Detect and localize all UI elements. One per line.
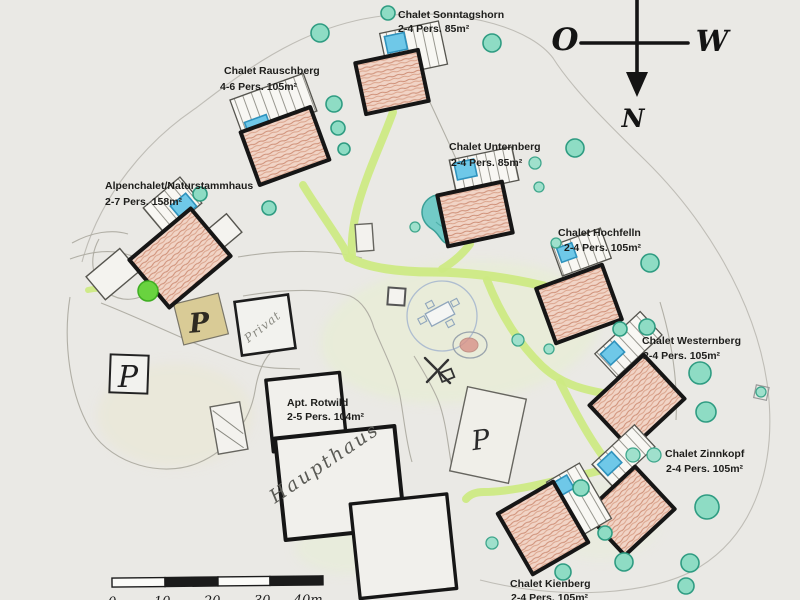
small-hut <box>355 223 374 251</box>
label-hochfelln-capacity: 2-4 Pers. 105m² <box>564 242 642 254</box>
label-alpenchalet-name: Alpenchalet/Naturstammhaus <box>105 180 253 192</box>
sandbox <box>387 287 405 305</box>
scale-tick-20: 20 <box>203 594 221 600</box>
green-bush <box>138 281 158 301</box>
label-rauschberg-capacity: 4-6 Pers. 105m² <box>220 81 298 93</box>
scale-bar: 0 10 20 30 40m <box>108 576 323 600</box>
label-zinnkopf-capacity: 2-4 Pers. 105m² <box>666 463 744 475</box>
site-map: Chalet Sonntagshorn 2-4 Pers. 85m² Chale… <box>0 0 800 600</box>
compass: O W N <box>551 0 730 133</box>
parking-p-tan: P <box>187 307 212 340</box>
label-rotwild-capacity: 2-5 Pers. 104m² <box>287 411 365 423</box>
label-westernberg-capacity: 2-4 Pers. 105m² <box>643 350 721 362</box>
scale-tick-0: 0 <box>108 595 116 600</box>
compass-north: N <box>621 104 646 133</box>
haupthaus-annex <box>350 494 456 599</box>
label-kienberg-name: Chalet Kienberg <box>510 578 591 590</box>
compass-west: W <box>696 24 731 58</box>
label-hochfelln-name: Chalet Hochfelln <box>558 227 641 239</box>
label-kienberg-capacity: 2-4 Pers. 105m² <box>511 592 589 600</box>
compass-east: O <box>551 22 578 58</box>
label-unternberg-name: Chalet Unternberg <box>449 141 541 153</box>
label-rauschberg-name: Chalet Rauschberg <box>224 65 320 77</box>
scale-tick-10: 10 <box>154 594 171 600</box>
label-alpenchalet-capacity: 2-7 Pers. 158m² <box>105 196 183 208</box>
label-sonntagshorn-name: Chalet Sonntagshorn <box>398 9 504 21</box>
label-sonntagshorn-capacity: 2-4 Pers. 85m² <box>398 23 470 35</box>
label-westernberg-name: Chalet Westernberg <box>642 335 741 347</box>
label-zinnkopf-name: Chalet Zinnkopf <box>665 448 745 460</box>
scale-tick-40m: 40m <box>293 593 323 600</box>
site-map-drawing: Chalet Sonntagshorn 2-4 Pers. 85m² Chale… <box>0 0 800 600</box>
parking-p-white: P <box>117 360 139 395</box>
label-rotwild-name: Apt. Rotwild <box>287 397 348 409</box>
scale-tick-30: 30 <box>254 593 271 600</box>
label-unternberg-capacity: 2-4 Pers. 85m² <box>451 157 523 169</box>
compass-arrow <box>626 72 648 97</box>
